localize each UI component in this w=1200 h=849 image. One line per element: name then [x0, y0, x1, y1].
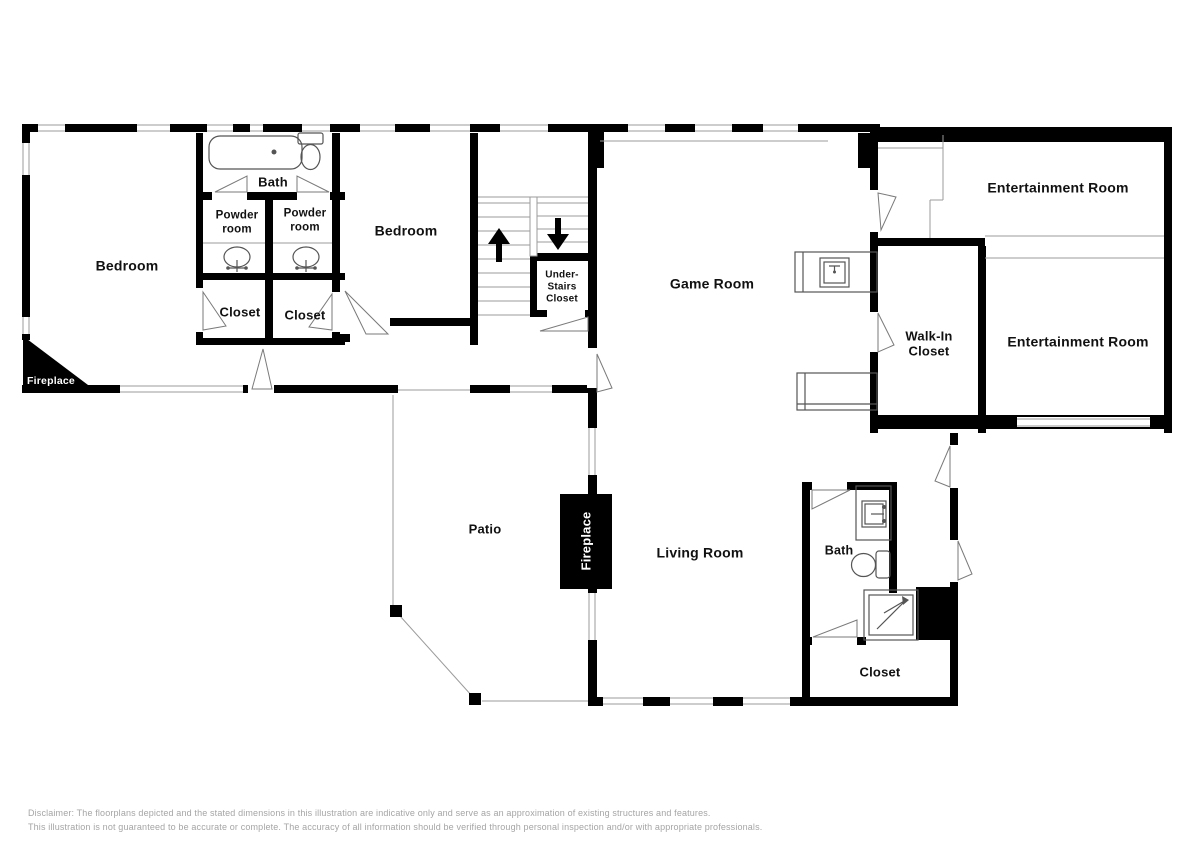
room-label-entertainment-lower: Entertainment Room — [1007, 334, 1148, 351]
toilet-lower-icon — [852, 551, 891, 578]
door-bath-left — [215, 176, 247, 192]
room-label-entertainment-upper: Entertainment Room — [987, 180, 1128, 197]
wet-bar-counter — [795, 252, 877, 292]
sink-bath-lower-icon — [856, 486, 891, 540]
room-label-patio: Patio — [469, 521, 502, 536]
room-label-bath-upper: Bath — [258, 174, 288, 189]
room-label-powder-right: Powder room — [276, 207, 334, 234]
label-fireplace-living: Fireplace — [578, 512, 593, 571]
toilet-upper-icon — [298, 133, 323, 170]
room-label-walk-in-closet: Walk-In Closet — [896, 329, 962, 360]
door-bedroom-middle — [345, 291, 388, 334]
floor-plan: Bedroom Bath Powder room Powder room Bed… — [0, 0, 1200, 849]
shower-icon — [864, 590, 918, 640]
floor-plan-drawing — [0, 0, 1200, 849]
door-game-room — [597, 354, 612, 392]
room-label-powder-left: Powder room — [208, 209, 266, 236]
label-fireplace-corner: Fireplace — [27, 375, 75, 387]
sink-powder-right-icon — [293, 247, 319, 272]
patio-outline — [393, 395, 588, 701]
room-label-bedroom-middle: Bedroom — [375, 223, 438, 240]
lower-counter — [797, 373, 877, 410]
room-label-closet-lower: Closet — [860, 664, 901, 679]
stair-divider — [530, 197, 537, 256]
door-walk-in-closet — [878, 313, 894, 352]
door-bath-lower — [812, 490, 850, 509]
door-bath-right — [297, 176, 329, 192]
room-label-bath-lower: Bath — [825, 544, 854, 559]
upper-floor-stair-lines — [878, 135, 943, 238]
disclaimer-line-1: Disclaimer: The floorplans depicted and … — [28, 808, 711, 818]
room-label-living-room: Living Room — [657, 545, 744, 562]
door-bedroom-left-patio — [252, 349, 272, 389]
door-living-side-upper — [935, 446, 950, 487]
door-entertainment-upper — [878, 193, 896, 230]
room-label-game-room: Game Room — [670, 276, 754, 293]
stairs-down-arrow-icon — [547, 218, 569, 250]
door-under-stairs — [540, 317, 588, 331]
room-label-closet-right: Closet — [285, 307, 326, 322]
room-label-bedroom-left: Bedroom — [96, 258, 159, 275]
sink-powder-left-icon — [224, 247, 250, 272]
bathtub-icon — [209, 136, 302, 169]
disclaimer-line-2: This illustration is not guaranteed to b… — [28, 822, 762, 832]
room-label-under-stairs-closet: Under-Stairs Closet — [536, 269, 588, 304]
room-label-closet-left: Closet — [220, 304, 261, 319]
door-closet-lower — [813, 620, 857, 637]
door-living-side-lower — [958, 541, 972, 580]
